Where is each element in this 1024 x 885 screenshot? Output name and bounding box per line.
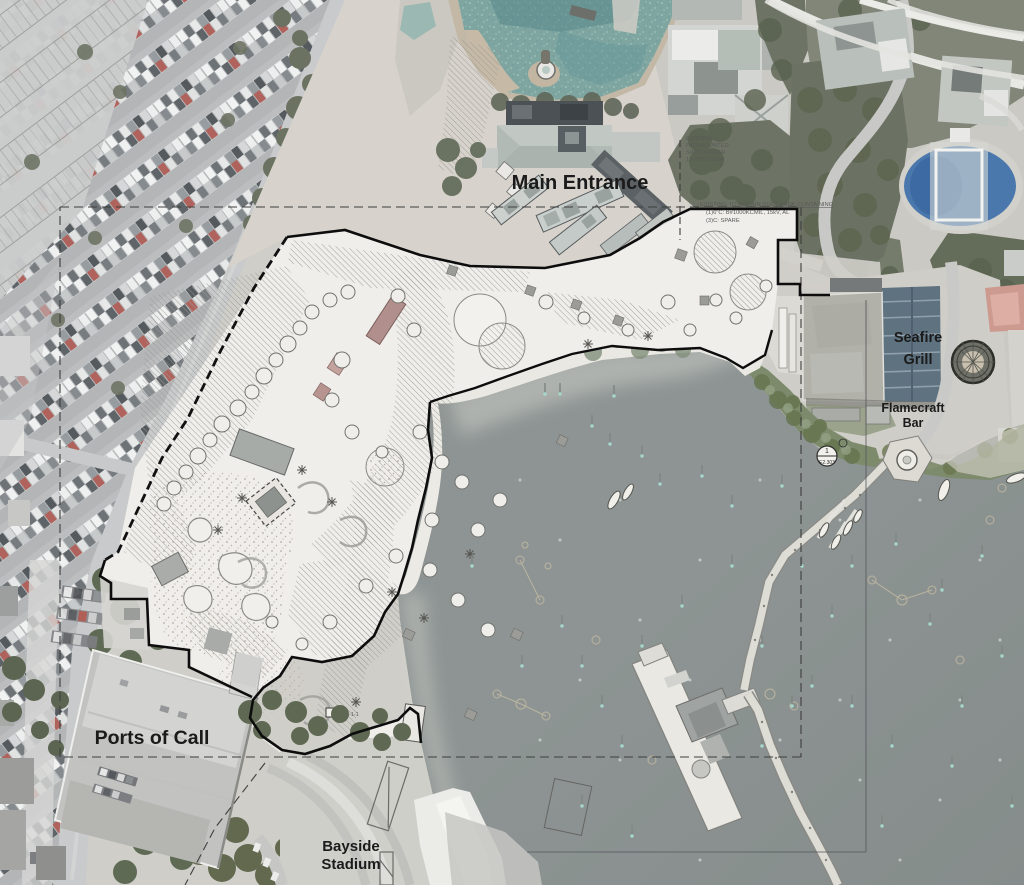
svg-text:SWITCHGEAR: SWITCHGEAR (686, 150, 725, 156)
svg-text:EXISTING TO REMAIN DUCT BANK C: EXISTING TO REMAIN DUCT BANK CONTAINING (700, 202, 834, 208)
svg-text:(1)6"C: B#1000KCMIL, 15kV, AL: (1)6"C: B#1000KCMIL, 15kV, AL (706, 210, 790, 216)
svg-text:Seafire: Seafire (894, 330, 942, 346)
svg-text:Ports of Call: Ports of Call (95, 727, 210, 749)
svg-text:Stadium: Stadium (321, 856, 380, 873)
svg-text:Flamecraft: Flamecraft (881, 401, 945, 415)
svg-text:Grill: Grill (903, 352, 932, 368)
svg-text:Bar: Bar (903, 416, 924, 430)
svg-text:Bayside: Bayside (322, 838, 380, 855)
svg-text:(3)C: SPARE: (3)C: SPARE (706, 218, 740, 224)
svg-text:1: 1 (825, 448, 829, 455)
svg-text:EXISTING: EXISTING (686, 136, 714, 142)
svg-text:13/209 158294: 13/209 158294 (686, 157, 725, 163)
svg-text:Main Entrance: Main Entrance (512, 172, 649, 194)
svg-text:E2.303: E2.303 (819, 460, 835, 466)
svg-text:PAD-MOUNTED: PAD-MOUNTED (686, 143, 729, 149)
